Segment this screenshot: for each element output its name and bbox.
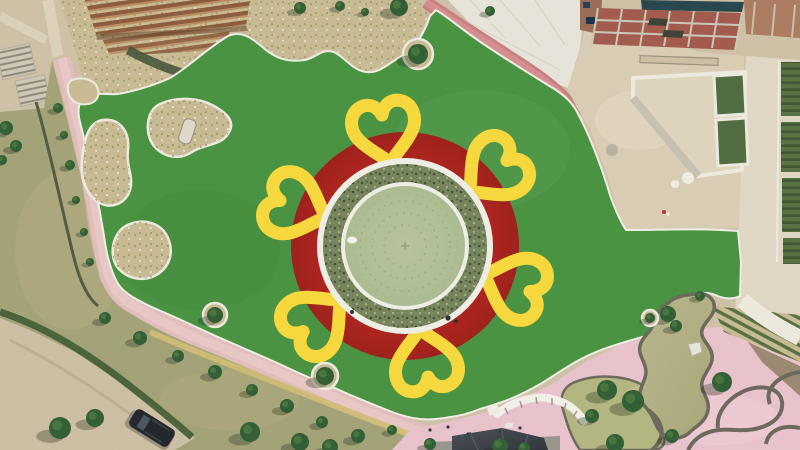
aerial-park-photo [0,0,800,450]
photo-grain [0,0,800,450]
park-scene [0,0,800,450]
